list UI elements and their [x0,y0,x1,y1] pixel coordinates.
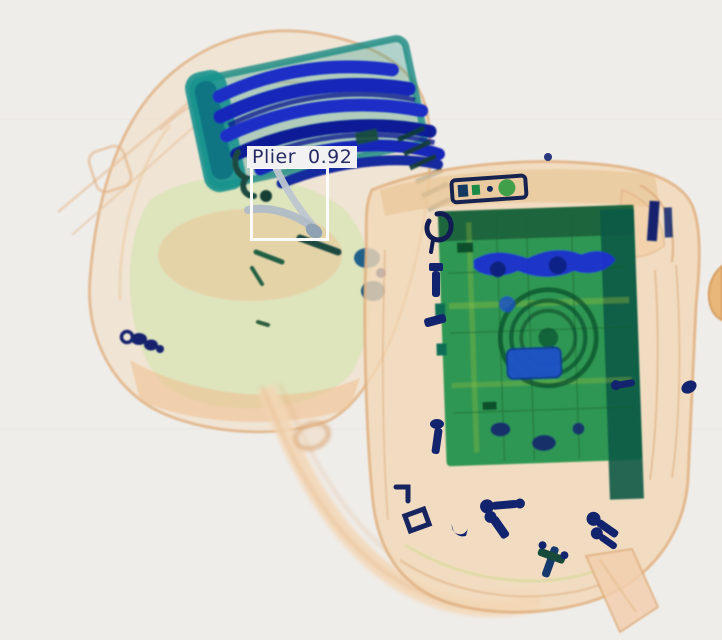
detection-bounding-box [250,166,329,241]
flashlight [451,175,526,202]
xray-scan-image [0,0,722,640]
detection-label: Plier0.92 [247,146,357,168]
xray-scan-viewport: Plier0.92 [0,0,722,640]
detection-confidence-score: 0.92 [308,146,352,168]
detection-class-name: Plier [252,146,296,168]
